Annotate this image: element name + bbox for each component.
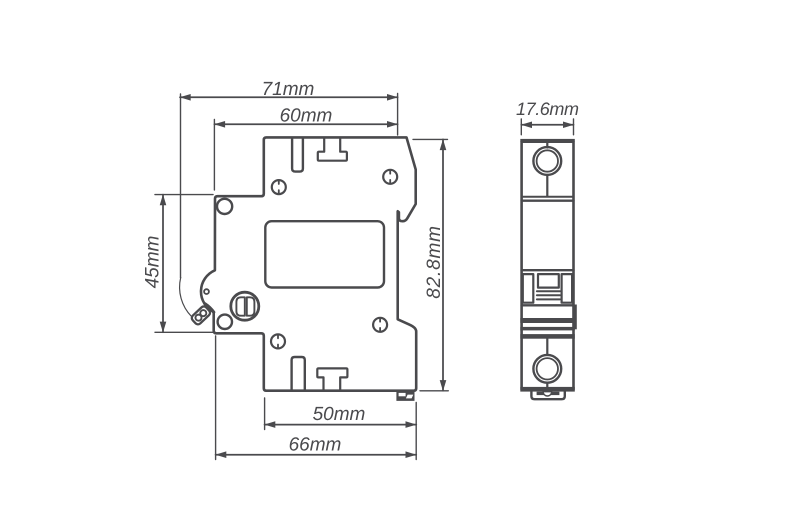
svg-text:82.8mm: 82.8mm [424, 225, 445, 298]
svg-text:66mm: 66mm [289, 434, 342, 455]
svg-text:17.6mm: 17.6mm [516, 99, 579, 119]
svg-text:71mm: 71mm [262, 79, 315, 100]
svg-text:50mm: 50mm [313, 404, 366, 425]
svg-text:45mm: 45mm [142, 236, 163, 289]
svg-text:60mm: 60mm [280, 105, 333, 126]
